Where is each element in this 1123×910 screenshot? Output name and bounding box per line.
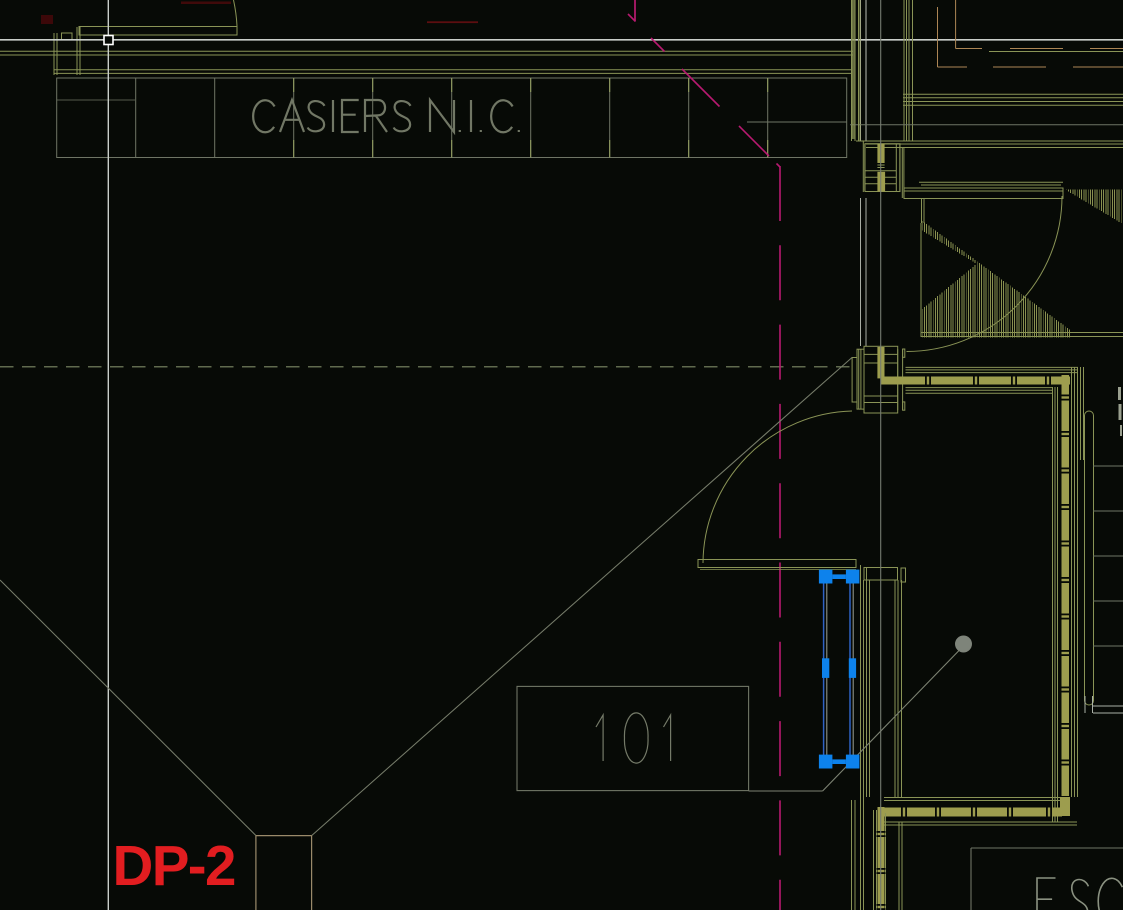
svg-text:DP-2: DP-2 [113, 834, 236, 897]
